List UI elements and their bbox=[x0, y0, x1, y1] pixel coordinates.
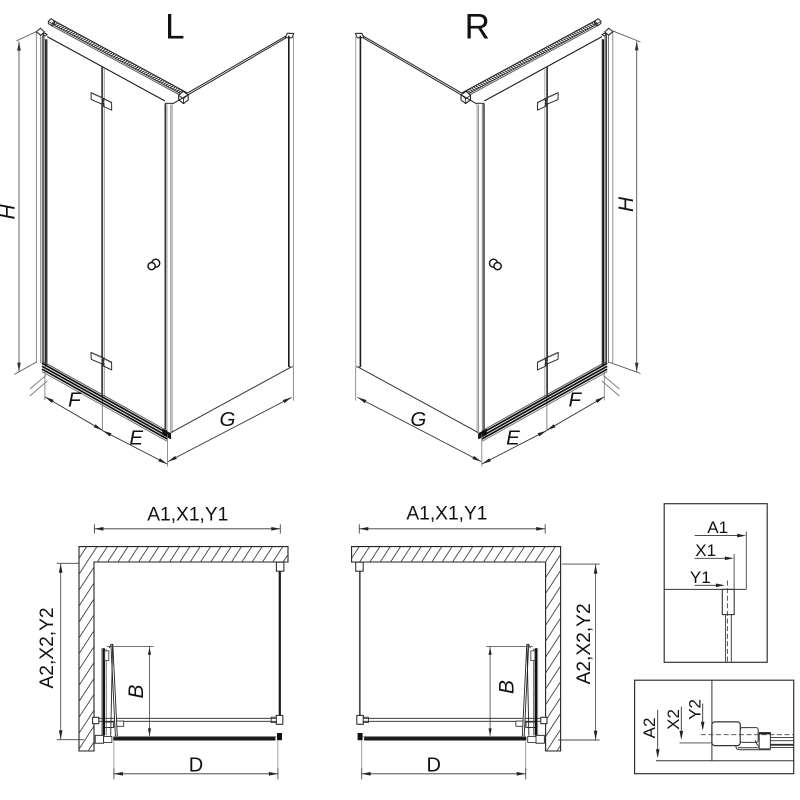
svg-text:A1,X1,Y1: A1,X1,Y1 bbox=[406, 504, 487, 525]
svg-text:G: G bbox=[220, 408, 236, 431]
svg-text:A2: A2 bbox=[640, 718, 659, 739]
svg-text:D: D bbox=[426, 755, 440, 777]
svg-text:E: E bbox=[506, 426, 520, 449]
svg-text:A1,X1,Y1: A1,X1,Y1 bbox=[147, 504, 228, 525]
svg-text:A2,X2,Y2: A2,X2,Y2 bbox=[37, 607, 58, 688]
svg-text:F: F bbox=[569, 389, 583, 412]
svg-text:X1: X1 bbox=[695, 541, 716, 560]
svg-text:A2,X2,Y2: A2,X2,Y2 bbox=[574, 603, 595, 684]
svg-text:B: B bbox=[495, 680, 518, 694]
svg-text:H: H bbox=[615, 196, 638, 212]
svg-text:D: D bbox=[189, 755, 203, 777]
svg-text:H: H bbox=[0, 203, 20, 219]
svg-text:Y2: Y2 bbox=[686, 699, 705, 720]
svg-text:L: L bbox=[165, 7, 184, 46]
svg-text:Y1: Y1 bbox=[690, 568, 711, 587]
svg-text:E: E bbox=[129, 426, 143, 449]
svg-text:G: G bbox=[410, 408, 426, 431]
svg-text:F: F bbox=[68, 389, 82, 412]
svg-text:B: B bbox=[125, 684, 148, 698]
svg-text:X2: X2 bbox=[664, 709, 683, 730]
svg-text:A1: A1 bbox=[707, 518, 728, 537]
svg-text:R: R bbox=[465, 8, 490, 47]
